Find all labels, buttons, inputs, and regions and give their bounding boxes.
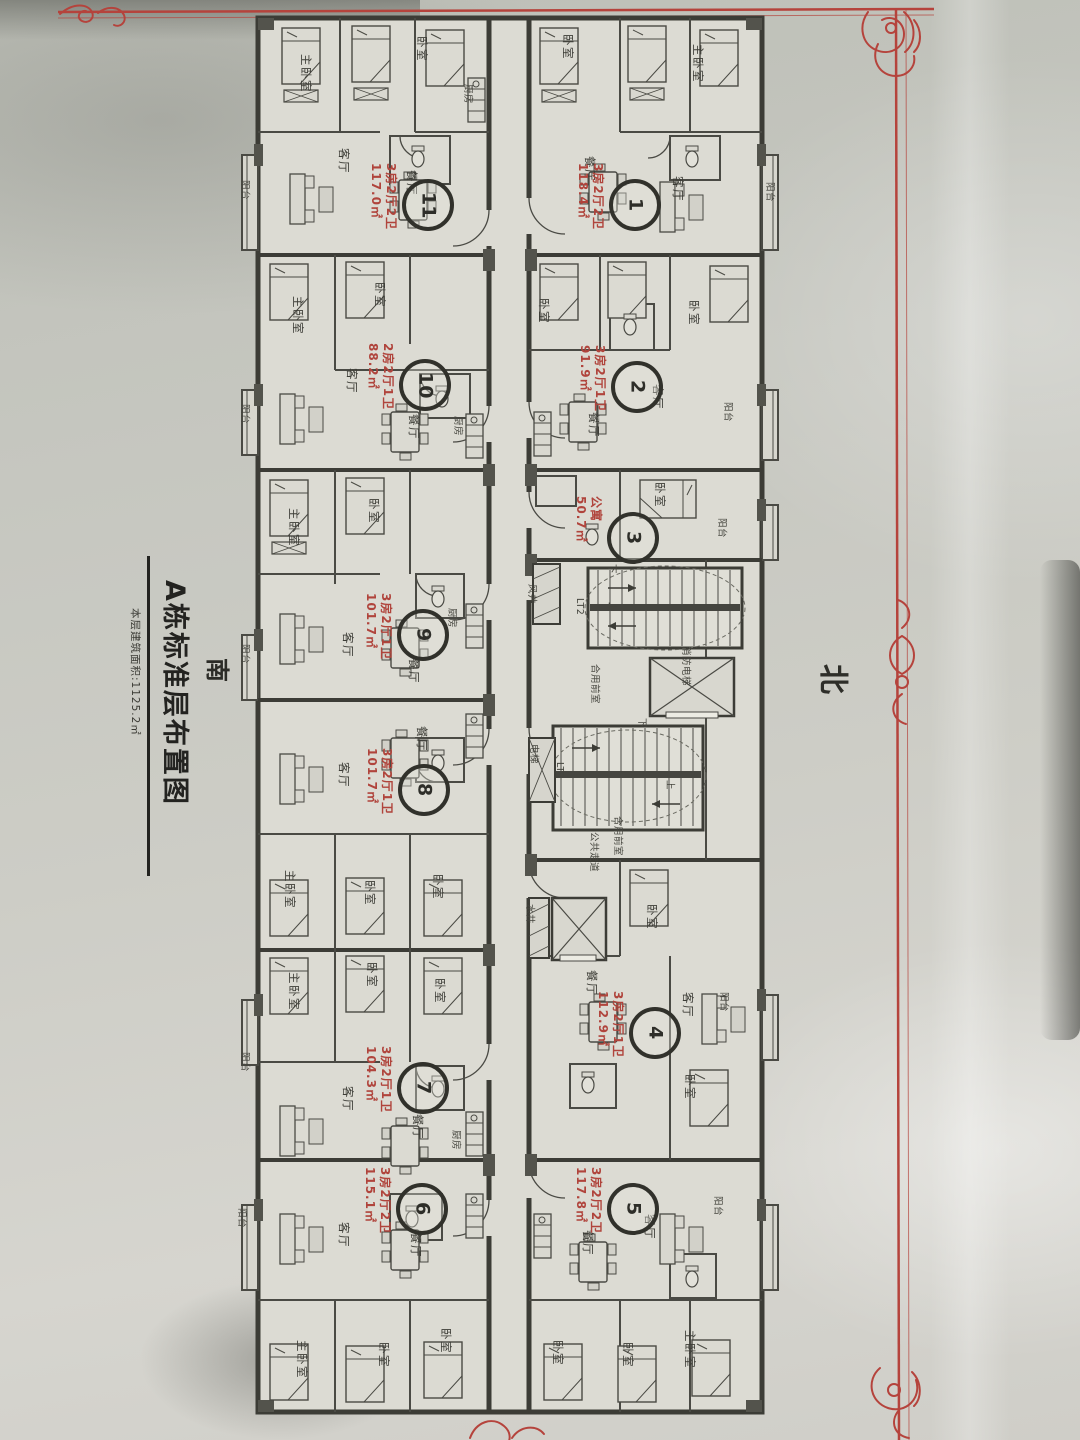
room-label-bedroom: 卧室 — [438, 1328, 454, 1354]
wind-shaft-label: 风井 — [526, 584, 540, 604]
room-label-dining: 餐厅 — [406, 414, 422, 440]
room-label-kitchen: 厨房 — [462, 84, 476, 104]
room-label-dining: 餐厅 — [414, 726, 430, 752]
unit-11-label: 3房2厅2卫117.0㎡ — [368, 163, 398, 230]
room-label-living: 客厅 — [336, 762, 352, 788]
room-label-bedroom: 卧室 — [414, 36, 430, 62]
room-label-bedroom: 卧室 — [550, 1340, 566, 1366]
shared-lobby-label: 合用前室 — [589, 664, 603, 704]
room-label-master-bedroom: 主卧室 — [290, 296, 306, 335]
public-corridor-label: 公共走道 — [588, 832, 602, 872]
room-label-balcony: 阳台 — [236, 1208, 250, 1228]
unit-4-label: 3房2厅1卫112.9㎡ — [595, 991, 625, 1058]
room-label-balcony: 阳台 — [239, 644, 253, 664]
unit-3-circle: 3 — [607, 512, 659, 564]
room-label-bedroom: 卧室 — [652, 482, 668, 508]
elevator-label: 电梯 — [528, 744, 542, 764]
floor-plan-photo: 南 A栋标准层布置图 本层建筑面积:1125.2㎡ 北 — [0, 0, 1080, 1440]
room-label-dining: 餐厅 — [408, 1232, 424, 1258]
stair-lt2-label: LT2 — [574, 598, 585, 615]
title-block: 南 A栋标准层布置图 本层建筑面积:1125.2㎡ — [120, 556, 237, 876]
passenger-elevator-shaft — [552, 898, 606, 961]
stair-lt1-label: LT1 — [554, 762, 565, 779]
room-label-balcony: 阳台 — [718, 992, 732, 1012]
room-label-dining: 餐厅 — [410, 1114, 426, 1140]
room-label-kitchen: 厨房 — [446, 608, 460, 628]
compass-north-label: 北 — [814, 664, 858, 694]
stair-up-label: 上 — [664, 780, 678, 790]
unit-4-circle: 4 — [629, 1007, 681, 1059]
room-label-bedroom: 卧室 — [644, 904, 660, 930]
unit-11-circle: 11 — [402, 179, 454, 231]
unit-5-label: 3房2厅2卫117.8㎡ — [573, 1167, 603, 1234]
room-label-master-bedroom: 主卧室 — [682, 1330, 698, 1369]
room-label-living: 客厅 — [336, 1222, 352, 1248]
stair-down-label: 下 — [636, 718, 650, 728]
unit-10-circle: 10 — [399, 359, 451, 411]
room-label-balcony: 阳台 — [722, 402, 736, 422]
unit-7-label: 3房2厅1卫104.3㎡ — [363, 1046, 393, 1113]
room-label-master-bedroom: 主卧室 — [282, 870, 298, 909]
room-label-bedroom: 卧室 — [682, 1074, 698, 1100]
room-label-master-bedroom: 主卧室 — [298, 54, 314, 93]
room-label-balcony: 阳台 — [716, 518, 730, 538]
room-label-master-bedroom: 主卧室 — [690, 44, 706, 83]
floor-area-note: 本层建筑面积:1125.2㎡ — [125, 556, 143, 876]
stair-down-label: 下 — [606, 564, 620, 574]
room-label-living: 客厅 — [680, 992, 696, 1018]
unit-1-circle: 1 — [609, 179, 661, 231]
room-label-bedroom: 卧室 — [366, 498, 382, 524]
unit-10-label: 2房2厅1卫88.2㎡ — [365, 343, 395, 410]
water-shaft-label: 水井 — [524, 904, 538, 924]
fire-elevator-label: 消防电梯 — [680, 646, 694, 686]
room-label-balcony: 阳台 — [764, 182, 778, 202]
room-label-bedroom: 卧室 — [364, 962, 380, 988]
room-label-dining: 餐厅 — [586, 412, 602, 438]
room-label-dining: 餐厅 — [406, 658, 422, 684]
room-label-bedroom: 卧室 — [620, 1342, 636, 1368]
room-label-living: 客厅 — [340, 632, 356, 658]
room-label-kitchen: 厨房 — [452, 416, 466, 436]
unit-9-circle: 9 — [397, 609, 449, 661]
room-label-balcony: 阳台 — [239, 404, 253, 424]
room-label-balcony: 阳台 — [712, 1196, 726, 1216]
room-label-balcony: 阳台 — [239, 180, 253, 200]
floor-plan-title: A栋标准层布置图 — [147, 556, 197, 876]
unit-2-label: 3房2厅1卫91.9㎡ — [577, 345, 607, 412]
unit-2-circle: 2 — [611, 361, 663, 413]
unit-6-label: 3房2厅2卫115.1㎡ — [362, 1167, 392, 1234]
unit-8-label: 3房2厅1卫101.7㎡ — [364, 748, 394, 815]
unit-7-circle: 7 — [397, 1062, 449, 1114]
unit-3-label: 公寓50.7㎡ — [573, 496, 603, 543]
unit-1-label: 3房2厅2卫118.4㎡ — [575, 163, 605, 230]
room-label-master-bedroom: 主卧室 — [286, 508, 302, 547]
unit-9-label: 3房2厅1卫101.7㎡ — [363, 593, 393, 660]
room-label-kitchen: 厨房 — [450, 1130, 464, 1150]
room-label-bedroom: 卧室 — [560, 34, 576, 60]
room-label-master-bedroom: 主卧室 — [286, 972, 302, 1011]
room-label-living: 客厅 — [340, 1086, 356, 1112]
stair-lt1 — [550, 726, 706, 830]
room-label-bedroom: 卧室 — [686, 300, 702, 326]
room-label-bedroom: 卧室 — [536, 298, 552, 324]
room-label-living: 客厅 — [336, 148, 352, 174]
shared-lobby-label: 合用前室 — [612, 816, 626, 856]
unit-6-circle: 6 — [396, 1183, 448, 1235]
room-label-bedroom: 卧室 — [362, 880, 378, 906]
room-label-master-bedroom: 主卧室 — [294, 1340, 310, 1379]
floor-plan-drawing — [240, 14, 780, 1418]
compass-south-label: 南 — [197, 556, 237, 876]
room-label-living: 客厅 — [344, 368, 360, 394]
room-label-bedroom: 卧室 — [430, 874, 446, 900]
room-label-balcony: 阳台 — [239, 1052, 253, 1072]
room-label-bedroom: 卧室 — [372, 282, 388, 308]
room-label-bedroom: 卧室 — [432, 978, 448, 1004]
unit-5-circle: 5 — [607, 1183, 659, 1235]
unit-8-circle: 8 — [398, 764, 450, 816]
room-label-bedroom: 卧室 — [376, 1342, 392, 1368]
room-label-living: 客厅 — [670, 176, 686, 202]
stair-up-label: 上 — [606, 602, 620, 612]
